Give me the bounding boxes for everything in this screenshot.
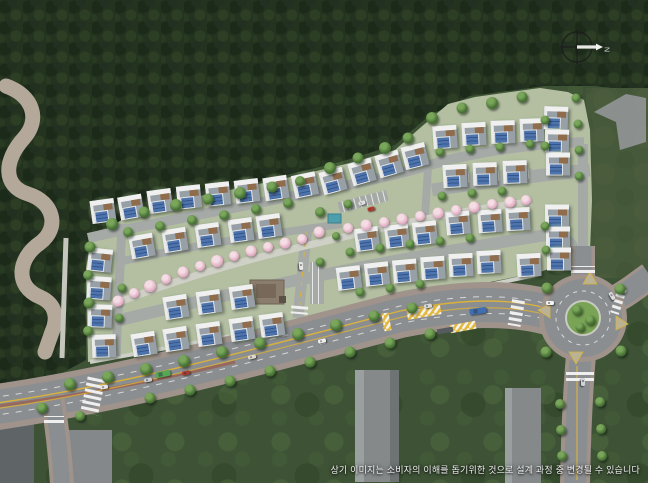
disclaimer-caption: 상기 이미지는 소비자의 이해를 돕기위한 것으로 설계 과정 중 변경될 수 … xyxy=(330,463,640,476)
community-building xyxy=(250,280,286,304)
north-compass: N xyxy=(552,24,624,72)
pool xyxy=(328,214,341,223)
site-plan-rendering: N 상기 이미지는 소비자의 이해를 돕기위한 것으로 설계 과정 중 변경될 … xyxy=(0,0,648,483)
terrain-layer xyxy=(0,0,648,483)
compass-north-label: N xyxy=(603,47,610,52)
